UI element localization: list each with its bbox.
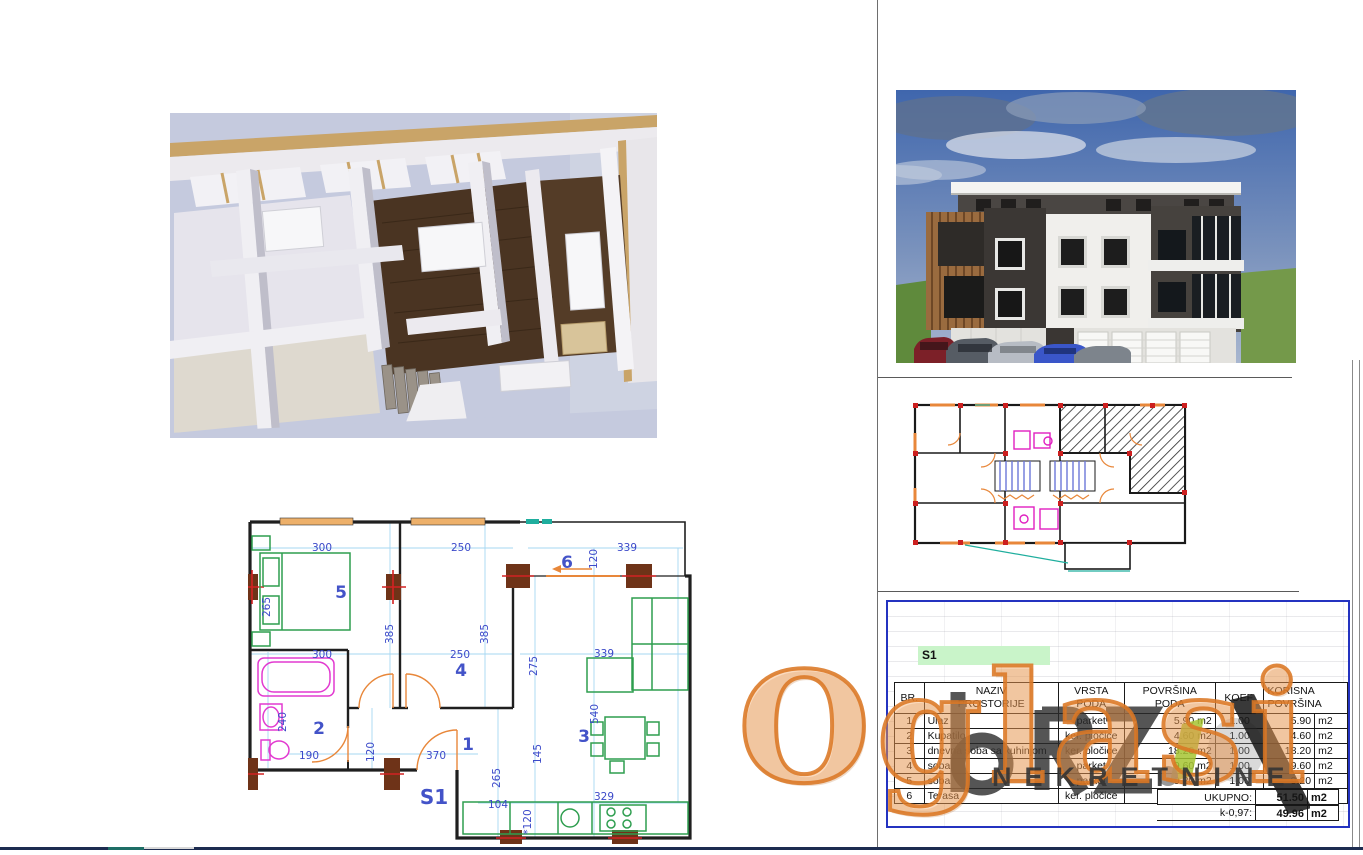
dim-label: 145 (532, 744, 544, 764)
furniture-living (587, 598, 688, 773)
total-unit: m2 (1307, 789, 1339, 805)
dim-label: 240 (277, 712, 289, 732)
room-label: 3 (578, 727, 590, 747)
dim-label: 329 (594, 791, 614, 803)
area-table-panel: S1 BR. NAZIVPROSTORIJE VRSTAPODA POVRŠIN… (886, 600, 1350, 828)
vertical-divider (877, 0, 878, 847)
table-row: 5soba parket9.20 m2 1.009.20m2 (895, 774, 1348, 789)
dim-label: 385 (384, 624, 396, 644)
building (926, 182, 1244, 363)
dim-label: 300 (312, 542, 332, 554)
dim-label: 265 (261, 597, 273, 617)
total-label: UKUPNO: (1157, 789, 1255, 805)
dim-label: *120 (522, 809, 534, 834)
unit-label-cell: S1 (918, 646, 1050, 665)
dim-label: 265 (491, 768, 503, 788)
dimension-lines (250, 522, 688, 838)
coefficient-value: 49.96 (1255, 805, 1307, 821)
table-header-row: BR. NAZIVPROSTORIJE VRSTAPODA POVRŠINAPO… (895, 683, 1348, 714)
dim-label: 300 (312, 649, 332, 661)
table-row: 1Ulaz parket5.90 m2 1.005.90m2 (895, 714, 1348, 729)
dim-label: 120 (588, 549, 600, 569)
table-row: 2Kupatilo ker. pločice4.60 m2 1.004.60m2 (895, 729, 1348, 744)
building-storey-plan (900, 393, 1230, 578)
room-label: 4 (455, 661, 467, 681)
grass-right (1241, 268, 1296, 363)
storey-plan-graphic (900, 393, 1230, 578)
floor-plan-graphic: 300 250 120 339 265 385 385 300 250 275 … (248, 512, 693, 844)
dim-label: 104 (488, 799, 508, 811)
dim-label: 339 (594, 648, 614, 660)
bottom-border-line (0, 847, 1363, 850)
dim-label: 540 (589, 704, 601, 724)
table-row: 3dnevna soba sa kuhinjom ker. pločice18.… (895, 744, 1348, 759)
room-label: 6 (561, 553, 573, 573)
building-exterior-render (896, 90, 1296, 363)
bottom-border-teal-segment (108, 847, 144, 850)
coefficient-row: k-0,97: 49.96 m2 (894, 805, 1340, 821)
bottom-border-light-segment (144, 847, 194, 849)
areas-table: BR. NAZIVPROSTORIJE VRSTAPODA POVRŠINAPO… (894, 682, 1348, 804)
room-label: 2 (313, 719, 325, 739)
total-value: 51.50 (1255, 789, 1307, 805)
dim-label: 385 (479, 624, 491, 644)
room-label: 1 (462, 735, 474, 755)
total-row: UKUPNO: 51.50 m2 (894, 789, 1340, 805)
dim-label: 190 (299, 750, 319, 762)
listing-image: 300 250 120 339 265 385 385 300 250 275 … (0, 0, 1363, 855)
col-br: BR. (895, 683, 925, 714)
dim-label: 370 (426, 750, 446, 762)
col-naziv: NAZIVPROSTORIJE (924, 683, 1058, 714)
coefficient-label: k-0,97: (1157, 805, 1255, 821)
col-korisna: KORISNAPOVRŠINA (1264, 683, 1348, 714)
col-koef: KOEF. (1215, 683, 1264, 714)
apartment-floor-plan: 300 250 120 339 265 385 385 300 250 275 … (248, 512, 693, 844)
dim-label: 250 (450, 649, 470, 661)
right-border-line-inner (1359, 360, 1360, 847)
room-label: 5 (335, 583, 347, 603)
dim-label: 120 (365, 742, 377, 762)
col-povrsina: POVRŠINAPODA (1124, 683, 1215, 714)
building-render-graphic (896, 90, 1296, 363)
right-border-line-outer (1352, 360, 1353, 847)
apartment-3d-cutaway-render (170, 113, 657, 438)
bathroom-fixtures (258, 658, 334, 760)
unit-label-plan: S1 (420, 785, 448, 809)
horizontal-divider-2 (878, 591, 1299, 592)
dim-label: 275 (528, 656, 540, 676)
coefficient-unit: m2 (1307, 805, 1339, 821)
table-row: 4soba parket9.60 m2 1.009.60m2 (895, 759, 1348, 774)
walls (250, 522, 690, 838)
col-vrsta: VRSTAPODA (1058, 683, 1124, 714)
dimension-labels: 300 250 120 339 265 385 385 300 250 275 … (261, 542, 637, 835)
horizontal-divider-1 (878, 377, 1292, 378)
unit-label: S1 (922, 648, 937, 662)
dim-label: 339 (617, 542, 637, 554)
render-3d-graphic (170, 113, 657, 438)
table-footer: UKUPNO: 51.50 m2 k-0,97: 49.96 m2 (894, 789, 1340, 821)
dim-label: 250 (451, 542, 471, 554)
